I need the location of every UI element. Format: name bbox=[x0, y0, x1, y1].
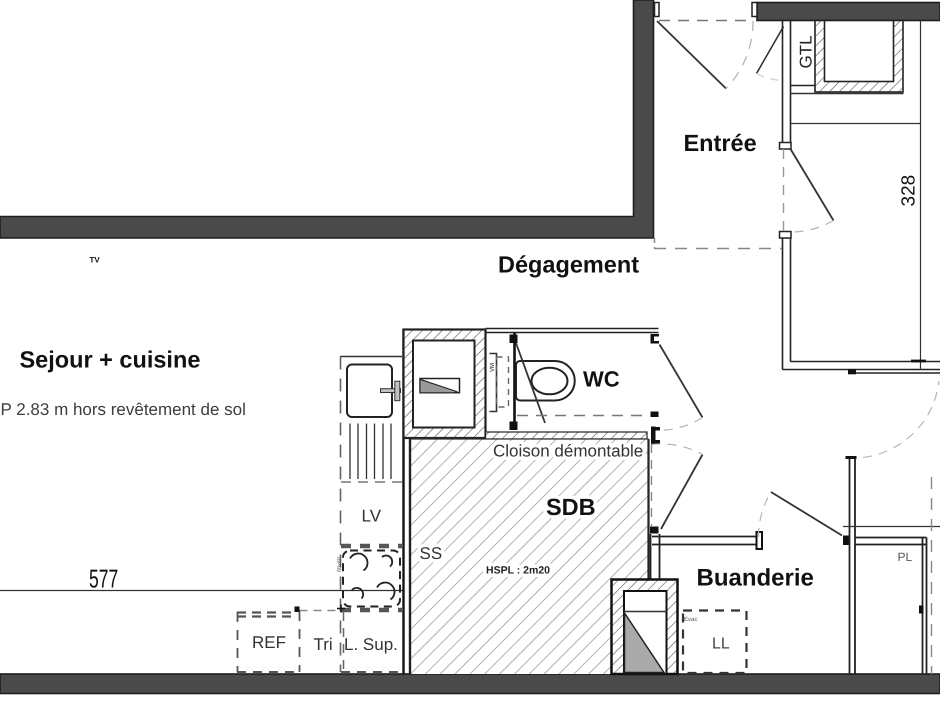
svg-text:Buanderie: Buanderie bbox=[697, 565, 814, 592]
svg-text:SS: SS bbox=[420, 544, 443, 563]
svg-text:PL: PL bbox=[898, 550, 913, 564]
svg-text:GTL: GTL bbox=[797, 35, 816, 68]
svg-text:Dégagement: Dégagement bbox=[498, 252, 639, 278]
svg-text:HSPL : 2m20: HSPL : 2m20 bbox=[486, 565, 550, 577]
svg-text:SDB: SDB bbox=[546, 494, 596, 520]
svg-text:60x60: 60x60 bbox=[337, 557, 343, 572]
svg-text:Sejour + cuisine: Sejour + cuisine bbox=[20, 347, 201, 373]
svg-text:LL: LL bbox=[712, 636, 730, 653]
svg-text:Tri: Tri bbox=[314, 635, 333, 654]
svg-text:328: 328 bbox=[899, 175, 920, 207]
svg-text:WC: WC bbox=[583, 367, 620, 392]
svg-text:L. Sup.: L. Sup. bbox=[344, 635, 398, 654]
svg-text:Evac: Evac bbox=[684, 616, 697, 623]
svg-text:Cloison démontable: Cloison démontable bbox=[493, 442, 643, 461]
svg-text:577: 577 bbox=[89, 565, 118, 594]
svg-text:TV: TV bbox=[90, 256, 101, 265]
svg-text:REF: REF bbox=[252, 633, 286, 652]
svg-text:LV: LV bbox=[362, 507, 382, 526]
svg-text:Entrée: Entrée bbox=[684, 130, 757, 156]
svg-text:VM: VM bbox=[489, 363, 496, 372]
svg-text:P 2.83 m hors revêtement de so: P 2.83 m hors revêtement de sol bbox=[1, 400, 246, 419]
